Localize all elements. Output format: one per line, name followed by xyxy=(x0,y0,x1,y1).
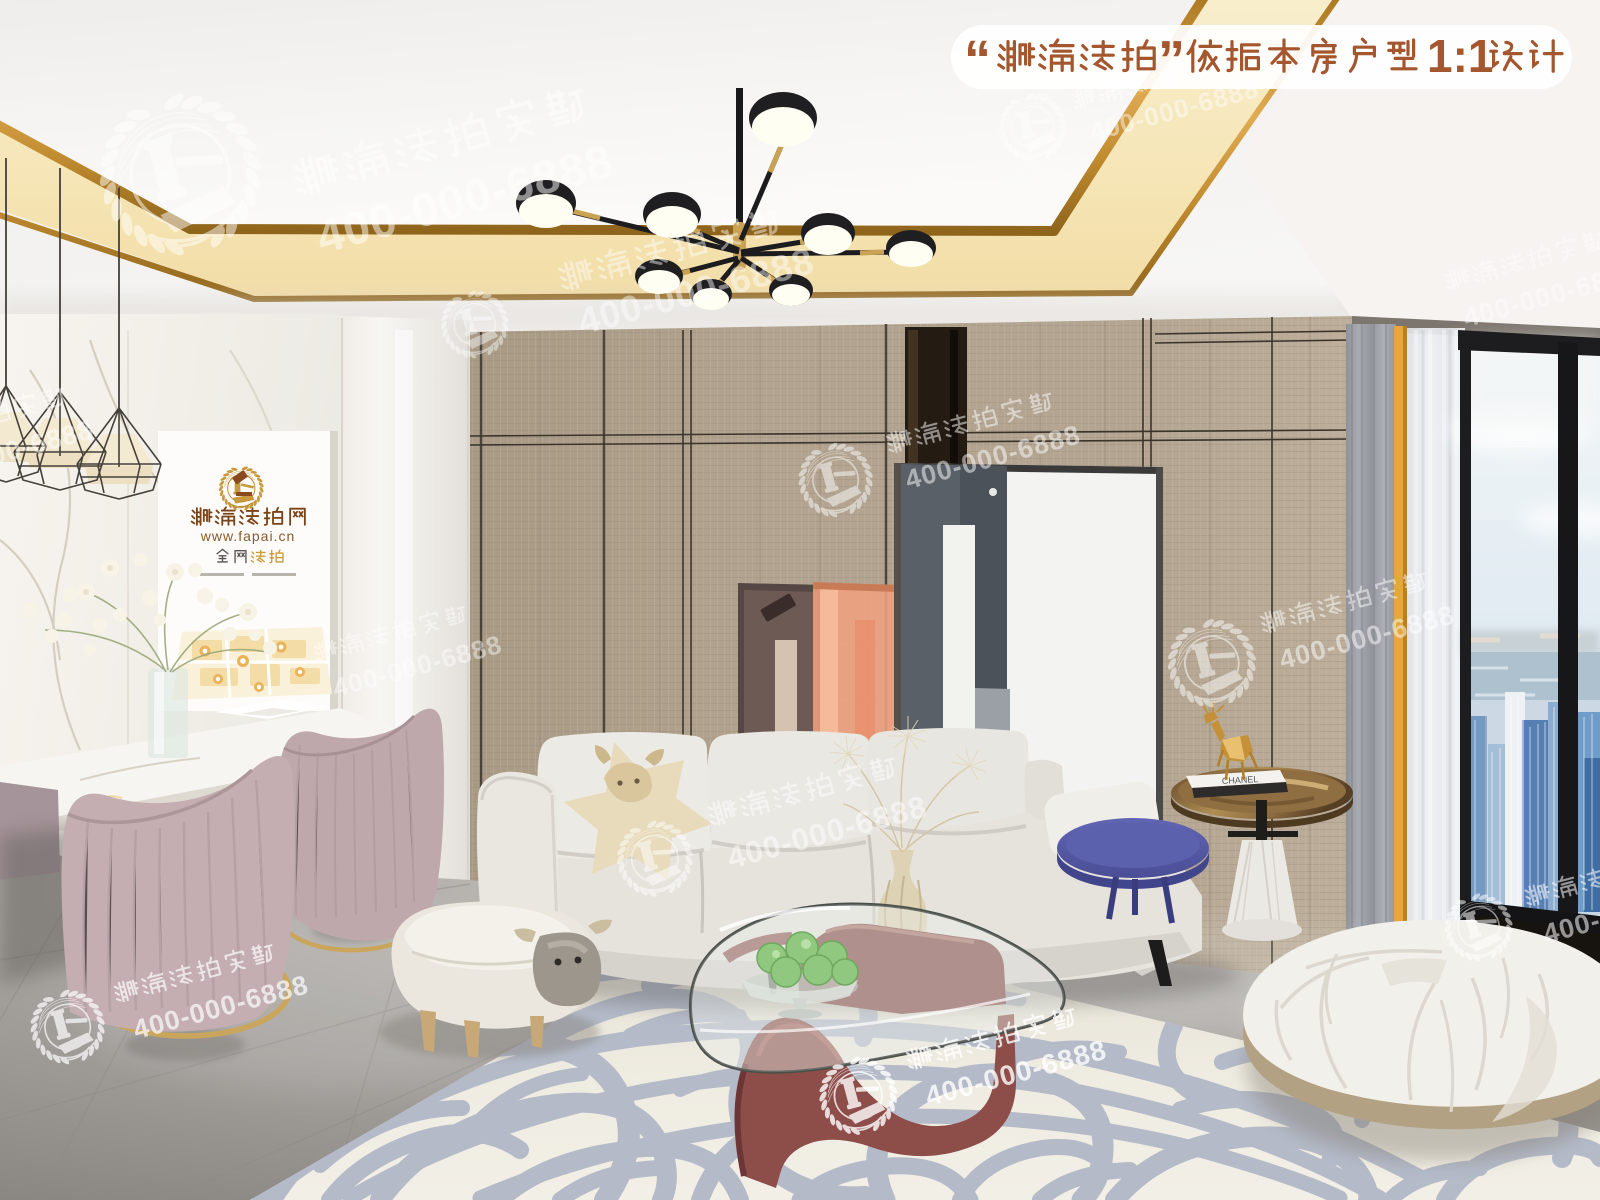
svg-text:“: “ xyxy=(964,30,991,90)
svg-text:1:1: 1:1 xyxy=(1427,30,1493,82)
svg-text:www.fapai.cn: www.fapai.cn xyxy=(200,528,295,544)
svg-text:”: ” xyxy=(1158,30,1185,90)
